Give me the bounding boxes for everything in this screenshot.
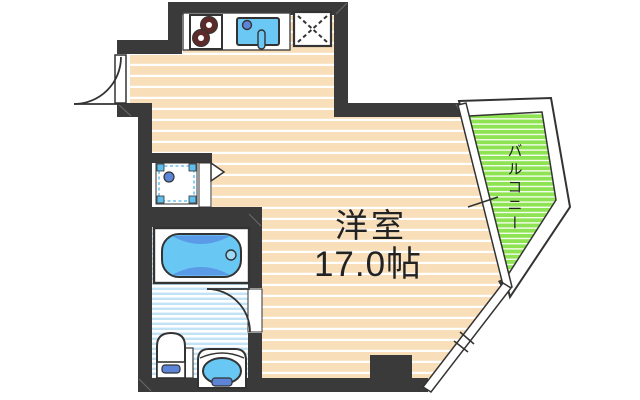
pillar <box>370 355 412 379</box>
refrigerator-space-icon <box>294 12 331 46</box>
entrance-door-icon <box>74 55 126 104</box>
floor-plan: 洋室 17.0帖 バルコニー <box>0 0 640 400</box>
toilet-icon <box>198 349 246 388</box>
balcony-label: バルコニー <box>506 143 523 233</box>
bathtub-icon <box>154 228 249 283</box>
kitchen-sink-icon <box>237 18 279 49</box>
stove-burners-icon <box>190 15 222 49</box>
floor-plan-drawing: 洋室 17.0帖 バルコニー <box>0 0 640 400</box>
main-room-label: 洋室 <box>335 207 407 244</box>
kitchen-counter <box>183 13 290 50</box>
main-room-size: 17.0帖 <box>314 245 422 284</box>
washing-machine-space-icon <box>156 163 197 204</box>
